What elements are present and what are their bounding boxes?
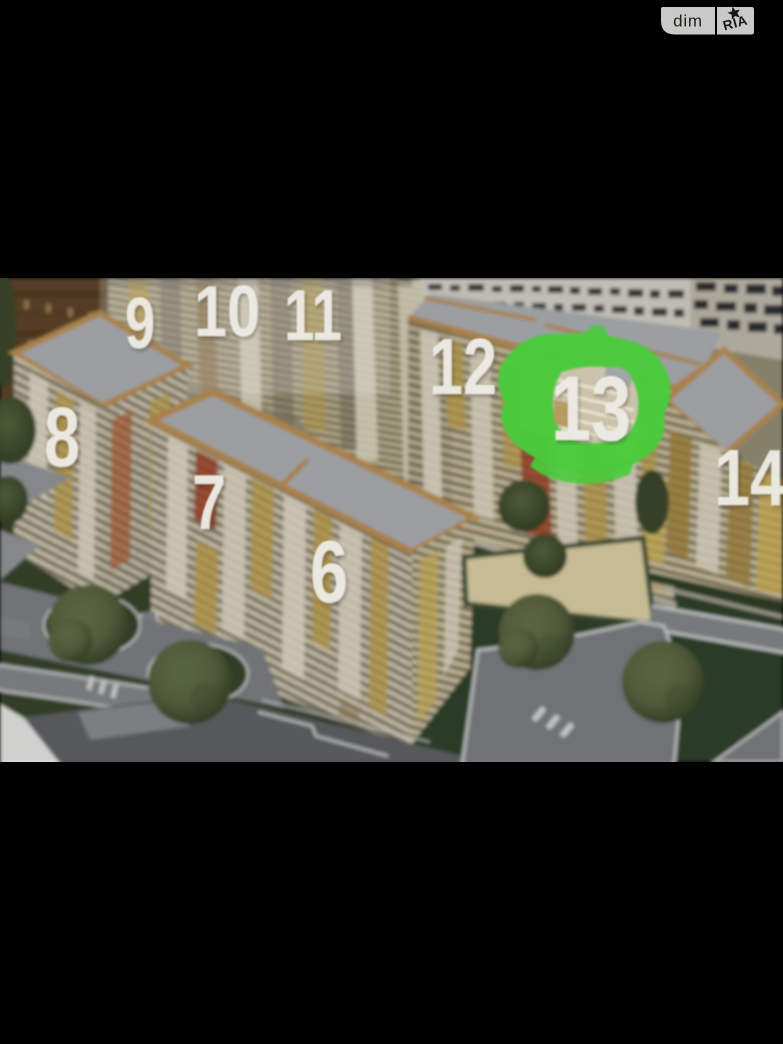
svg-text:12: 12 (429, 322, 497, 411)
svg-text:14: 14 (714, 433, 783, 522)
svg-text:dim: dim (673, 12, 703, 31)
svg-text:10: 10 (194, 272, 260, 352)
svg-text:8: 8 (44, 390, 80, 484)
svg-text:11: 11 (284, 276, 342, 356)
svg-text:9: 9 (125, 284, 155, 364)
svg-text:7: 7 (192, 458, 226, 546)
svg-text:13: 13 (551, 358, 631, 460)
svg-text:6: 6 (310, 522, 348, 621)
